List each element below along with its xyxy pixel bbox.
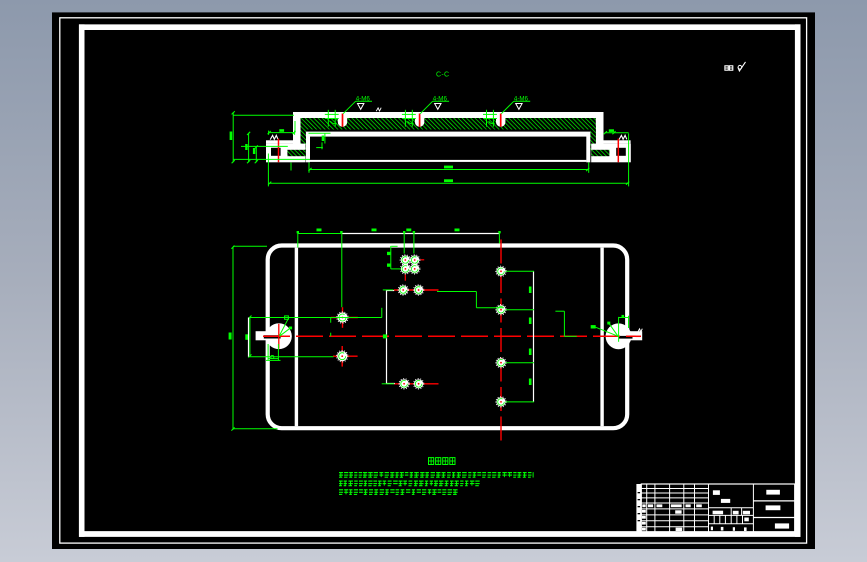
- svg-text:4-M6: 4-M6: [433, 95, 448, 102]
- svg-text:4-M6: 4-M6: [514, 95, 529, 102]
- svg-text:C-C: C-C: [436, 72, 449, 79]
- svg-text:4-M6: 4-M6: [356, 95, 371, 102]
